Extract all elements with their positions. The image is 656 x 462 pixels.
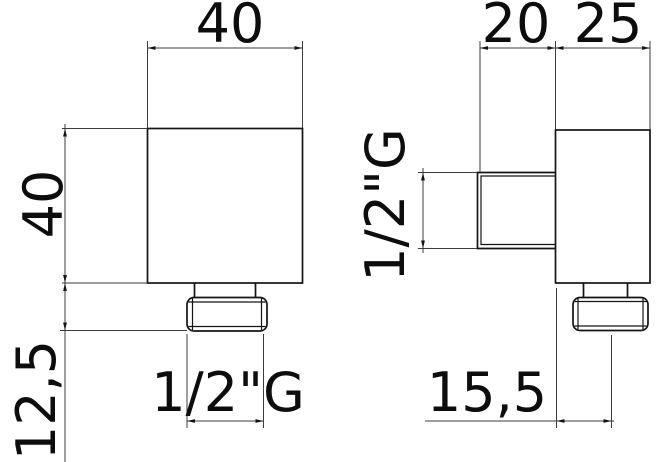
side-wall-port-outline	[478, 173, 556, 249]
shower-outlet-technical-drawing: 40 40 12,5 1/2"G	[0, 0, 656, 462]
side-thread-dimension: 1/2"G	[354, 128, 477, 282]
side-outlet-offset-label: 15,5	[427, 361, 547, 424]
side-depth-dimension-lines	[480, 41, 650, 172]
front-height-label: 40	[12, 170, 75, 239]
front-width-label: 40	[196, 0, 265, 55]
front-outlet-length-label: 12,5	[5, 340, 68, 460]
side-outlet-neck	[584, 283, 628, 298]
front-outlet-nut-thread-lines	[189, 299, 266, 331]
front-thread-dimension: 1/2"G	[151, 334, 305, 428]
side-body-outline	[556, 130, 651, 283]
side-port-depth-label: 20	[482, 0, 551, 55]
side-body-depth-label: 25	[574, 0, 643, 55]
front-outlet-neck	[195, 283, 256, 298]
side-outlet-offset-dimension: 15,5	[425, 288, 614, 428]
front-view: 40 40 12,5 1/2"G	[5, 0, 305, 462]
side-depth-dimensions: 20 25	[480, 0, 650, 172]
front-body-outline	[148, 129, 303, 284]
side-view: 20 25 1/2"G 15,5	[354, 0, 650, 428]
technical-drawing-page: 40 40 12,5 1/2"G	[0, 0, 656, 462]
side-thread-label: 1/2"G	[354, 128, 417, 282]
side-wall-port-thread-line	[481, 176, 556, 245]
side-thread-dimension-lines	[418, 168, 477, 253]
front-width-dimension: 40	[148, 0, 303, 128]
side-outlet-nut-thread-lines	[575, 299, 647, 330]
front-thread-label: 1/2"G	[151, 361, 305, 424]
